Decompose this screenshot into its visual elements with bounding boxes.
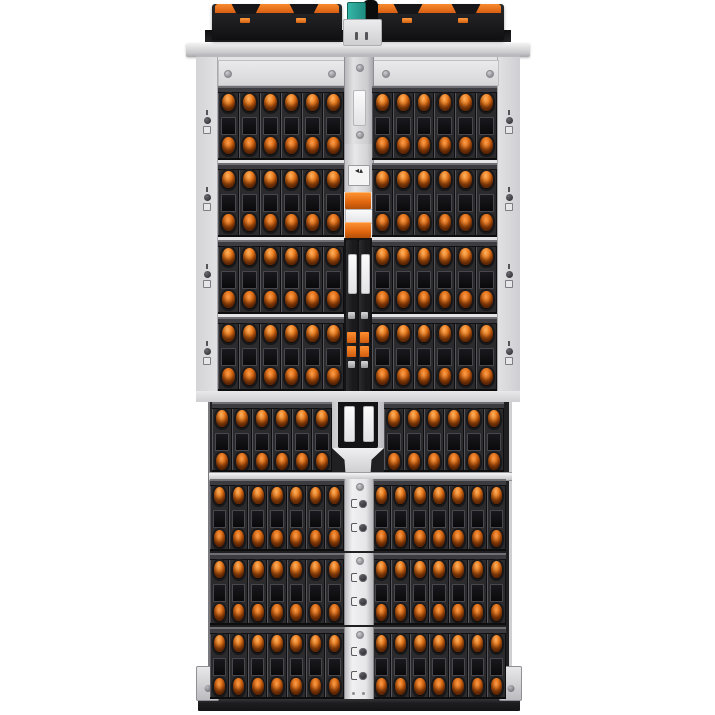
latch-recess [308, 676, 323, 697]
drive-latch-knob [214, 530, 226, 547]
drive-latch-knob [376, 325, 389, 342]
latch-recess [395, 289, 412, 311]
drive-carrier [372, 242, 393, 312]
indicator-dot-icon [506, 117, 513, 124]
drive-label-window [490, 510, 503, 528]
drive-latch-knob [222, 291, 235, 308]
latch-recess [395, 169, 412, 191]
drive-latch-knob [395, 678, 407, 695]
drive-carrier [248, 555, 267, 623]
drive-latch-knob [376, 530, 388, 547]
drive-latch-knob [264, 137, 277, 154]
drive-latch-knob [243, 248, 256, 265]
latch-recess [220, 289, 237, 311]
drive-label-window [375, 117, 390, 135]
drive-latch-knob [428, 410, 440, 427]
controller-port-label [363, 406, 374, 442]
indicator-square-icon [505, 126, 513, 134]
controller-latch-orange [347, 332, 356, 343]
drive-latch-knob [468, 410, 480, 427]
drive-latch-knob [222, 248, 235, 265]
drive-latch-knob [376, 137, 389, 154]
upper-panel-left [218, 60, 345, 86]
latch-recess [269, 485, 284, 507]
drive-carrier [476, 319, 497, 389]
latch-recess [374, 559, 389, 581]
latch-recess [466, 451, 482, 470]
latch-recess [220, 92, 237, 114]
drive-latch-knob [397, 368, 410, 385]
latch-recess [478, 212, 495, 234]
drive-latch-knob [329, 530, 341, 547]
latch-recess [325, 212, 342, 234]
latch-recess [327, 602, 342, 623]
center-bracket [343, 19, 382, 46]
drive-latch-knob [395, 487, 407, 504]
drive-latch-knob [264, 291, 277, 308]
indicator-bar-icon [206, 341, 208, 346]
drive-latch-knob [222, 171, 235, 188]
latch-recess [269, 528, 284, 549]
drive-label-window [375, 271, 390, 289]
drive-carrier [372, 165, 393, 235]
latch-recess [289, 559, 304, 581]
latch-recess [470, 676, 485, 697]
drive-label-window [375, 584, 388, 602]
latch-recess [283, 169, 300, 191]
latch-recess [289, 602, 304, 623]
psu-fan-module-left [212, 4, 342, 40]
drive-latch-knob [376, 487, 388, 504]
latch-recess [262, 289, 279, 311]
drive-latch-knob [452, 604, 464, 621]
release-button-indicator-icon [345, 597, 373, 606]
drive-label-window [394, 658, 407, 676]
drive-label-window [221, 194, 236, 212]
indicator-square-icon [203, 126, 211, 134]
drive-latch-knob [271, 530, 283, 547]
latch-recess [395, 135, 412, 157]
latch-recess [431, 602, 446, 623]
drive-carrier [239, 319, 260, 389]
drive-label-window [284, 194, 299, 212]
latch-recess [231, 485, 246, 507]
drive-carrier [410, 555, 429, 623]
screw-icon [382, 70, 390, 78]
module-latch-button [458, 18, 468, 23]
drive-latch-knob [414, 561, 426, 578]
latch-recess [325, 323, 342, 345]
drive-latch-knob [459, 368, 472, 385]
indicator-dot-icon [506, 271, 513, 278]
latch-recess [269, 676, 284, 697]
screw-icon [507, 685, 514, 692]
latch-recess [489, 528, 504, 549]
latch-recess [308, 528, 323, 549]
drive-latch-knob [256, 453, 268, 470]
drive-latch-knob [252, 635, 264, 652]
drive-carrier [229, 629, 248, 697]
drive-latch-knob [271, 487, 283, 504]
drive-latch-knob [271, 604, 283, 621]
drive-label-window [490, 658, 503, 676]
chassis-edge [509, 402, 512, 699]
drive-latch-knob [428, 453, 440, 470]
drive-label-window [447, 433, 461, 451]
latch-recess [325, 92, 342, 114]
psu-fan-module-right [374, 4, 504, 40]
latch-recess [231, 559, 246, 581]
latch-recess [470, 559, 485, 581]
drive-label-window [275, 433, 289, 451]
drive-latch-knob [310, 487, 322, 504]
drive-label-window [284, 117, 299, 135]
drive-label-window [221, 348, 236, 366]
drive-latch-knob [214, 487, 226, 504]
drive-label-window [235, 433, 249, 451]
drive-latch-knob [472, 561, 484, 578]
drive-carrier [210, 629, 229, 697]
drive-carrier [487, 555, 506, 623]
drive-carrier [414, 165, 435, 235]
latch-recess [212, 602, 227, 623]
controller-clip [361, 361, 368, 368]
drive-row-half [372, 240, 497, 314]
drive-latch-knob [285, 248, 298, 265]
indicator-bar-icon [206, 187, 208, 192]
drive-row-half [372, 86, 497, 160]
drive-latch-knob [276, 410, 288, 427]
screw-icon [224, 70, 232, 78]
drive-label-window [458, 117, 473, 135]
controller-label [361, 254, 370, 294]
drive-carrier [212, 404, 232, 470]
drive-carrier [372, 629, 391, 697]
latch-recess [212, 559, 227, 581]
drive-label-window [305, 271, 320, 289]
latch-recess [294, 408, 310, 430]
drive-latch-knob [395, 635, 407, 652]
drive-carrier [267, 481, 286, 549]
latch-recess [241, 212, 258, 234]
drive-label-window [452, 658, 465, 676]
drive-label-window [375, 348, 390, 366]
drive-label-window [458, 271, 473, 289]
drive-latch-knob [264, 94, 277, 111]
drive-label-window [242, 117, 257, 135]
drive-latch-knob [414, 530, 426, 547]
drive-latch-knob [306, 368, 319, 385]
latch-recess [374, 323, 391, 345]
drive-carrier [484, 404, 504, 470]
latch-recess [250, 559, 265, 581]
latch-recess [269, 602, 284, 623]
drive-label-window [263, 194, 278, 212]
drive-carrier [476, 88, 497, 158]
latch-recess [457, 366, 474, 388]
drive-latch-knob [433, 561, 445, 578]
drive-latch-knob [388, 453, 400, 470]
latch-recess [436, 212, 453, 234]
lock-status-indicator-icon [501, 341, 517, 365]
drive-latch-knob [376, 171, 389, 188]
controller-latch-orange [347, 346, 356, 357]
latch-recess [478, 246, 495, 268]
controller-port-label [344, 406, 355, 442]
latch-recess [231, 602, 246, 623]
latch-recess [304, 135, 321, 157]
latch-recess [283, 212, 300, 234]
latch-recess [393, 485, 408, 507]
drive-label-window [437, 271, 452, 289]
latch-recess [426, 451, 442, 470]
lock-status-indicator-icon [199, 341, 215, 365]
indicator-bar-icon [206, 264, 208, 269]
drive-label-window [396, 271, 411, 289]
drive-latch-knob [264, 171, 277, 188]
drive-label-window [263, 348, 278, 366]
lock-status-indicator-icon [199, 187, 215, 211]
latch-recess [416, 366, 433, 388]
drive-carrier [325, 481, 344, 549]
drive-latch-knob [491, 530, 503, 547]
drive-label-window [309, 584, 322, 602]
latch-recess [451, 633, 466, 655]
drive-label-window [263, 271, 278, 289]
drive-latch-knob [233, 487, 245, 504]
latch-recess [470, 602, 485, 623]
latch-recess [393, 633, 408, 655]
drive-latch-knob [233, 530, 245, 547]
latch-recess [436, 169, 453, 191]
latch-recess [220, 135, 237, 157]
drive-label-window [315, 433, 329, 451]
drive-latch-knob [439, 137, 452, 154]
indicator-square-icon [505, 203, 513, 211]
release-button-indicator-icon [345, 671, 373, 680]
drive-carrier [487, 629, 506, 697]
indicator-dot-icon [204, 271, 211, 278]
bracket-slot [365, 32, 368, 40]
drive-latch-knob [296, 453, 308, 470]
latch-recess [446, 451, 462, 470]
latch-recess [374, 528, 389, 549]
drive-label-window [387, 433, 401, 451]
latch-recess [486, 408, 502, 430]
lock-status-indicator-icon [501, 187, 517, 211]
drive-latch-knob [414, 678, 426, 695]
drive-latch-knob [452, 678, 464, 695]
drive-latch-knob [285, 94, 298, 111]
latch-recess [304, 289, 321, 311]
indicator-dot-icon [359, 648, 367, 656]
lock-status-indicator-icon [501, 110, 517, 134]
drive-latch-knob [306, 94, 319, 111]
latch-recess [374, 135, 391, 157]
drive-latch-knob [414, 635, 426, 652]
drive-label-window [284, 271, 299, 289]
drive-label-window [479, 348, 494, 366]
drive-carrier [391, 629, 410, 697]
drive-latch-knob [459, 214, 472, 231]
latch-recess [254, 408, 270, 430]
drive-row-half [210, 627, 344, 699]
drive-latch-knob [480, 94, 493, 111]
drive-latch-knob [290, 487, 302, 504]
controller-clip [348, 312, 355, 319]
module-latch-button [240, 18, 250, 23]
drive-carrier [325, 555, 344, 623]
latch-recess [457, 212, 474, 234]
drive-label-window [328, 584, 341, 602]
latch-recess [250, 676, 265, 697]
drive-latch-knob [397, 94, 410, 111]
drive-label-window [479, 271, 494, 289]
drive-row-half [372, 479, 506, 551]
drive-label-window [328, 658, 341, 676]
latch-recess [416, 246, 433, 268]
drive-latch-knob [491, 604, 503, 621]
drive-carrier [267, 629, 286, 697]
drive-latch-knob [271, 561, 283, 578]
screw-icon [328, 70, 336, 78]
latch-recess [412, 602, 427, 623]
drive-carrier [372, 88, 393, 158]
drive-carrier [323, 242, 344, 312]
latch-recess [304, 212, 321, 234]
drive-latch-knob [327, 171, 340, 188]
drive-latch-knob [236, 453, 248, 470]
drive-latch-knob [296, 410, 308, 427]
controller-clip [348, 361, 355, 368]
drive-latch-knob [243, 368, 256, 385]
drive-carrier [476, 165, 497, 235]
latch-recess [304, 92, 321, 114]
drive-label-window [407, 433, 421, 451]
drive-latch-knob [290, 678, 302, 695]
product-photo-storage-enclosure: ◂▴ [0, 0, 715, 715]
drive-latch-knob [376, 635, 388, 652]
drive-carrier [372, 319, 393, 389]
indicator-bracket-icon [351, 573, 357, 582]
drive-latch-knob [433, 530, 445, 547]
drive-latch-knob [290, 530, 302, 547]
drive-label-window [270, 658, 283, 676]
latch-recess [327, 559, 342, 581]
indicator-dot-icon [359, 524, 367, 532]
drive-latch-knob [316, 410, 328, 427]
latch-recess [250, 528, 265, 549]
drive-carrier [239, 88, 260, 158]
drive-label-window [490, 584, 503, 602]
latch-recess [374, 366, 391, 388]
drive-latch-knob [376, 94, 389, 111]
drive-latch-knob [397, 137, 410, 154]
drive-carrier [444, 404, 464, 470]
drive-label-window [432, 510, 445, 528]
drive-carrier [434, 88, 455, 158]
latch-recess [220, 323, 237, 345]
drive-carrier [455, 319, 476, 389]
drive-carrier [248, 629, 267, 697]
drive-label-window [375, 658, 388, 676]
latch-recess [220, 212, 237, 234]
release-button-indicator-icon [345, 499, 373, 508]
latch-recess [325, 169, 342, 191]
drive-carrier [372, 481, 391, 549]
drive-label-window [413, 584, 426, 602]
drive-latch-knob [376, 291, 389, 308]
drive-latch-knob [252, 530, 264, 547]
drive-carrier [218, 88, 239, 158]
spine-release-handle [345, 222, 371, 238]
latch-recess [457, 169, 474, 191]
latch-recess [250, 485, 265, 507]
indicator-dot-icon [506, 194, 513, 201]
latch-recess [374, 676, 389, 697]
drive-latch-knob [418, 325, 431, 342]
drive-carrier [429, 481, 448, 549]
drive-carrier [302, 242, 323, 312]
drive-carrier [260, 242, 281, 312]
latch-recess [212, 485, 227, 507]
drive-latch-knob [439, 171, 452, 188]
drive-latch-knob [222, 137, 235, 154]
latch-recess [416, 323, 433, 345]
drive-label-window [215, 433, 229, 451]
drive-carrier [325, 629, 344, 697]
drive-carrier [449, 481, 468, 549]
drive-latch-knob [459, 94, 472, 111]
drive-carrier [391, 481, 410, 549]
latch-recess [451, 559, 466, 581]
latch-recess [416, 289, 433, 311]
drive-carrier [464, 404, 484, 470]
latch-recess [436, 135, 453, 157]
drive-latch-knob [310, 678, 322, 695]
latch-recess [478, 289, 495, 311]
drive-label-window [394, 510, 407, 528]
drive-row-half [218, 163, 344, 237]
drive-latch-knob [459, 325, 472, 342]
drive-row-half [372, 553, 506, 625]
drive-label-window [437, 348, 452, 366]
indicator-dot-icon [359, 598, 367, 606]
latch-recess [212, 676, 227, 697]
drive-latch-knob [285, 325, 298, 342]
center-strip [344, 553, 374, 625]
drive-latch-knob [327, 94, 340, 111]
latch-recess [262, 135, 279, 157]
latch-recess [406, 408, 422, 430]
latch-recess [393, 602, 408, 623]
drive-latch-knob [472, 635, 484, 652]
drive-carrier [260, 319, 281, 389]
drive-latch-knob [327, 291, 340, 308]
latch-recess [294, 451, 310, 470]
drive-carrier [404, 404, 424, 470]
drive-label-window [290, 658, 303, 676]
drive-row-half [218, 86, 344, 160]
drive-latch-knob [376, 604, 388, 621]
drive-latch-knob [243, 214, 256, 231]
drive-latch-knob [472, 604, 484, 621]
indicator-bracket-icon [351, 671, 357, 680]
latch-recess [220, 366, 237, 388]
drive-latch-knob [216, 453, 228, 470]
drive-latch-knob [491, 678, 503, 695]
latch-recess [289, 528, 304, 549]
